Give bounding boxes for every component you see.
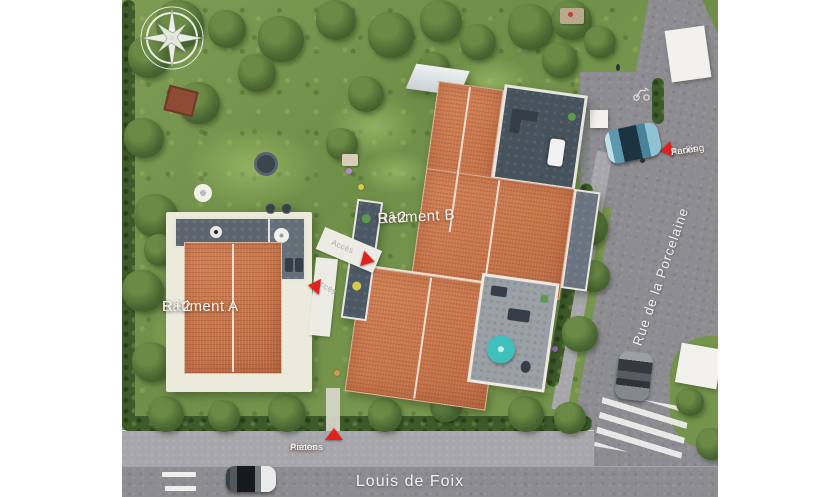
trampoline [254, 152, 278, 176]
tree [508, 4, 554, 50]
pedestrian [616, 64, 620, 71]
building-a-floors: R+2 [162, 296, 191, 317]
outbuilding-top-right [665, 25, 712, 82]
hedge-parking [652, 78, 664, 124]
compass-rose-icon [136, 2, 208, 74]
tree [542, 42, 578, 78]
tree [460, 24, 496, 60]
picnic-item [568, 12, 573, 17]
tree [696, 428, 718, 460]
aerial-photo: Accès Accès Accès Parking Accès Piétons … [122, 0, 718, 497]
patio-plant [540, 294, 549, 303]
tree [208, 10, 246, 48]
terrace-plant [567, 112, 576, 121]
tree [124, 118, 164, 158]
pedestrian [640, 158, 645, 163]
planter [265, 203, 276, 214]
patio-chair [520, 360, 532, 373]
tree [316, 0, 356, 40]
tree [148, 396, 184, 432]
tree [268, 394, 306, 432]
terrace-sofa [509, 108, 522, 133]
access-pedestrian-arrow-icon [325, 428, 343, 440]
plant [361, 214, 371, 224]
lounger [285, 258, 293, 272]
car-dark [226, 466, 276, 492]
building-b-terrace-top [491, 84, 588, 191]
lounger [295, 258, 303, 272]
tree [420, 0, 462, 42]
road-marking-dash [162, 472, 196, 477]
flower [346, 168, 352, 174]
car-gray [614, 350, 654, 402]
sidewalk-bottom [122, 430, 594, 466]
tree [676, 388, 704, 416]
tree [584, 26, 616, 58]
pedestrian-path [326, 388, 340, 431]
terrace-parasol [274, 228, 289, 243]
outbuilding-corner [675, 343, 718, 390]
tree [238, 54, 276, 92]
parasol-white [194, 184, 212, 202]
site-plan-canvas: Accès Accès Accès Parking Accès Piétons … [0, 0, 840, 497]
patio-table [507, 308, 530, 323]
scooter-marking-icon [632, 84, 652, 102]
walkway-upper-label: Accès [330, 238, 355, 255]
umbrella-teal [485, 333, 517, 365]
white-car [547, 138, 566, 167]
access-pedestrian-line2: Piétons [290, 442, 323, 453]
street-bottom-label: Louis de Foix [310, 473, 510, 491]
building-b-floors: R+2 [377, 207, 407, 229]
flower [358, 184, 364, 190]
planter [281, 203, 292, 214]
road-marking-dash [165, 486, 196, 491]
tree [122, 270, 164, 312]
access-arrow-left-icon [307, 277, 321, 295]
garden-table-set [342, 154, 358, 166]
tree [368, 12, 414, 58]
plant [352, 281, 362, 291]
tree [208, 400, 240, 432]
building-b-patio [467, 273, 560, 393]
building-b [336, 61, 621, 431]
patio-seating [490, 285, 507, 297]
terrace-table [210, 226, 222, 238]
